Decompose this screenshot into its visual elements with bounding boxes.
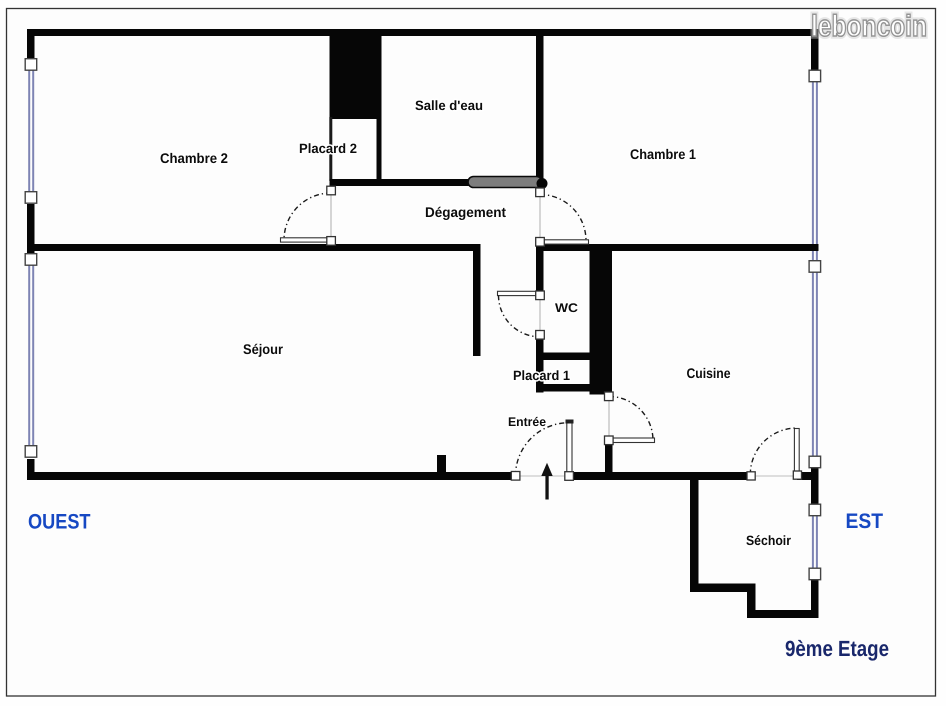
svg-text:Chambre 1: Chambre 1 — [630, 146, 696, 162]
svg-text:Séjour: Séjour — [243, 341, 283, 357]
svg-text:EST: EST — [846, 510, 884, 533]
svg-text:Salle d'eau: Salle d'eau — [415, 98, 483, 113]
svg-text:Dégagement: Dégagement — [425, 204, 506, 220]
svg-text:Entrée: Entrée — [508, 415, 546, 429]
svg-text:Chambre 2: Chambre 2 — [160, 150, 228, 166]
svg-text:WC: WC — [555, 301, 578, 315]
svg-text:Placard 2: Placard 2 — [299, 141, 357, 156]
svg-text:leboncoin: leboncoin — [811, 10, 927, 43]
svg-text:Séchoir: Séchoir — [746, 533, 792, 548]
svg-text:Cuisine: Cuisine — [687, 365, 731, 381]
svg-text:Placard 1: Placard 1 — [513, 368, 570, 383]
svg-text:9ème Etage: 9ème Etage — [785, 636, 889, 661]
svg-text:OUEST: OUEST — [28, 511, 91, 534]
